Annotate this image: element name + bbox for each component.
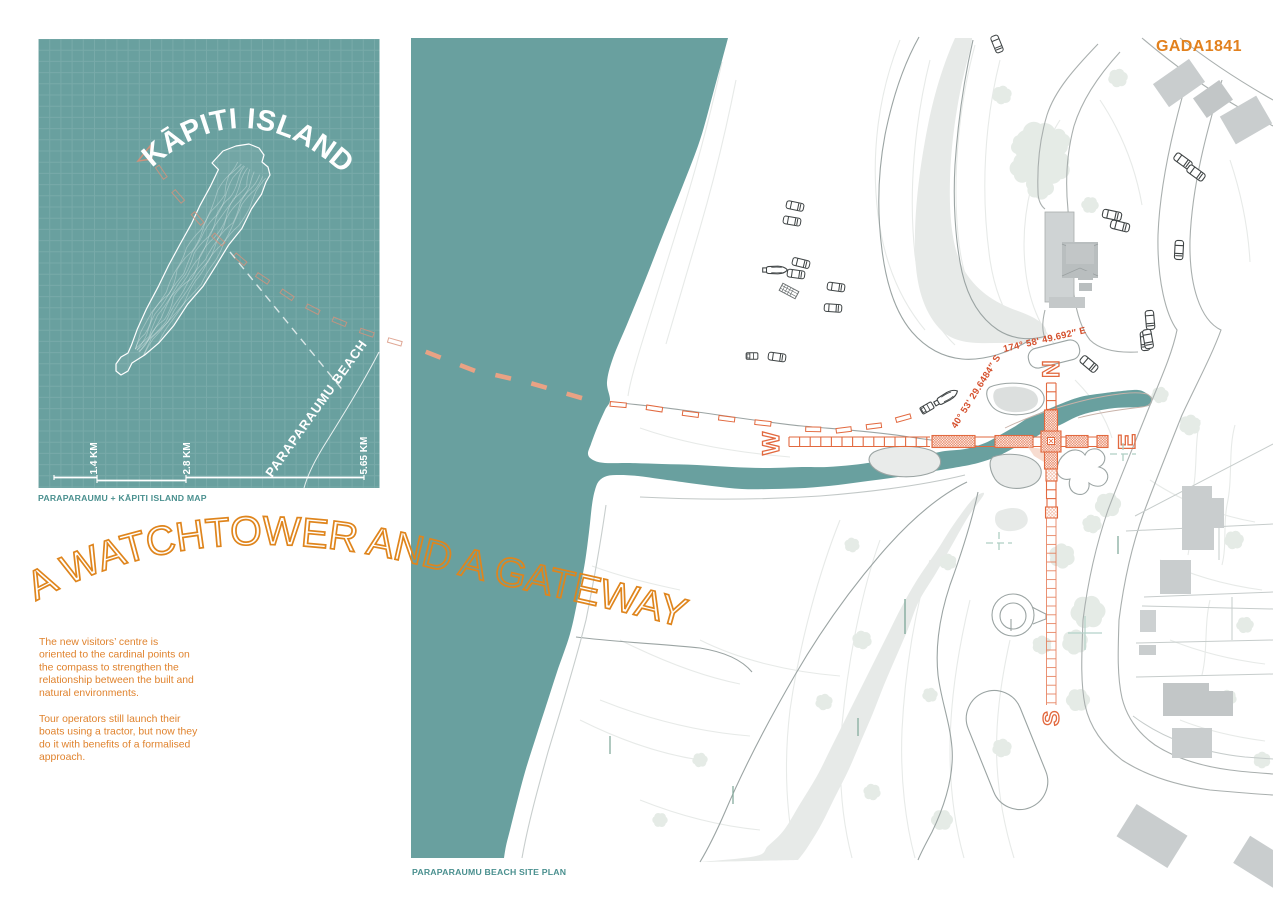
svg-text:boats using a tractor, but now: boats using a tractor, but now they: [39, 727, 198, 738]
svg-text:1.4 KM: 1.4 KM: [89, 442, 100, 474]
svg-text:GADA1841: GADA1841: [1156, 38, 1242, 55]
svg-text:Tour operators still launch th: Tour operators still launch their: [39, 714, 181, 725]
svg-text:S: S: [1038, 711, 1064, 726]
svg-text:do it with benefits of a forma: do it with benefits of a formalised: [39, 739, 191, 750]
svg-text:approach.: approach.: [39, 752, 85, 763]
svg-text:The new visitors’ centre is: The new visitors’ centre is: [39, 637, 158, 648]
svg-text:natural environments.: natural environments.: [39, 688, 139, 699]
svg-text:W: W: [758, 431, 785, 455]
svg-text:relationship between the built: relationship between the built and: [39, 675, 194, 686]
svg-text:N: N: [1038, 360, 1065, 378]
svg-text:5.65 KM: 5.65 KM: [359, 437, 370, 475]
svg-text:2.8 KM: 2.8 KM: [182, 442, 193, 474]
svg-text:PARAPARAUMU BEACH SITE PLAN: PARAPARAUMU BEACH SITE PLAN: [412, 867, 566, 877]
svg-text:E: E: [1114, 434, 1141, 450]
svg-text:the compass to strengthen the: the compass to strengthen the: [39, 662, 179, 673]
svg-text:PARAPARAUMU + KĀPITI ISLAND MA: PARAPARAUMU + KĀPITI ISLAND MAP: [38, 493, 207, 503]
svg-text:oriented to the cardinal point: oriented to the cardinal points on: [39, 650, 190, 661]
